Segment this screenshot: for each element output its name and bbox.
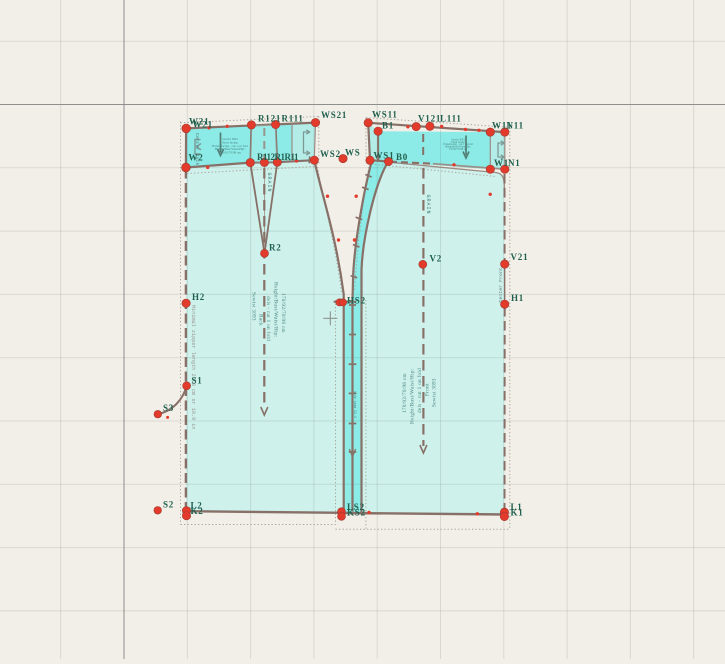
svg-text:GRAIN: GRAIN	[266, 173, 272, 193]
svg-text:WS: WS	[345, 148, 361, 158]
svg-text:Sewist 3093: Sewist 3093	[251, 292, 257, 321]
svg-text:W1: W1	[494, 158, 509, 168]
svg-text:WS21: WS21	[321, 110, 347, 120]
svg-text:W2: W2	[189, 153, 204, 163]
svg-text:dels - cut 1 on fold: dels - cut 1 on fold	[416, 368, 423, 413]
svg-text:dels - cut 1 on fold: dels - cut 1 on fold	[265, 296, 272, 341]
svg-text:Height/Bust/Waist/Hip:: Height/Bust/Waist/Hip:	[410, 368, 416, 424]
svg-text:K2: K2	[191, 506, 204, 516]
svg-text:R121: R121	[258, 114, 281, 124]
svg-text:170/92/70/98 cm: 170/92/70/98 cm	[402, 373, 408, 413]
svg-text:R111: R111	[282, 114, 304, 124]
svg-text:V21: V21	[511, 252, 529, 262]
svg-text:GRAIN: GRAIN	[425, 195, 431, 215]
svg-text:170/92/70/98 cm: 170/92/70/98 cm	[449, 148, 468, 151]
svg-text:V2: V2	[430, 254, 443, 264]
svg-text:K1: K1	[511, 508, 524, 518]
svg-text:side seam 52.3: side seam 52.3	[353, 391, 357, 418]
svg-text:H2: H2	[192, 292, 205, 302]
svg-text:HS2: HS2	[347, 296, 366, 306]
svg-text:B0: B0	[396, 152, 408, 162]
svg-text:WS1: WS1	[374, 151, 395, 161]
svg-text:WS11: WS11	[372, 110, 398, 120]
svg-text:S3: S3	[163, 403, 174, 413]
svg-text:170/92/70/98 cm: 170/92/70/98 cm	[280, 293, 286, 333]
svg-text:Sewist 3093: Sewist 3093	[432, 378, 438, 407]
svg-text:Back: Back	[258, 314, 264, 326]
svg-text:R112R1R11: R112R1R11	[257, 152, 299, 162]
svg-text:Minimal zipper length 27.8 cm: Minimal zipper length 27.8 cm or 10.9 in	[190, 305, 196, 430]
svg-text:H1: H1	[511, 293, 524, 303]
svg-text:KS2: KS2	[347, 508, 366, 518]
svg-text:Center Front: Center Front	[498, 267, 504, 302]
svg-text:L111: L111	[440, 114, 462, 124]
svg-text:WS2: WS2	[320, 149, 341, 159]
svg-text:170/92/70/98 cm: 170/92/70/98 cm	[219, 150, 241, 154]
svg-text:W21: W21	[193, 120, 213, 130]
svg-text:S2: S2	[163, 500, 174, 510]
svg-text:Front: Front	[425, 383, 431, 396]
svg-text:S1: S1	[192, 376, 203, 386]
svg-text:Height/Bust/Waist/Hip:: Height/Bust/Waist/Hip:	[273, 282, 279, 338]
svg-text:N1: N1	[508, 158, 521, 168]
svg-text:B1: B1	[382, 121, 394, 131]
svg-text:V121: V121	[418, 114, 441, 124]
svg-text:N11: N11	[507, 121, 524, 131]
svg-text:R2: R2	[269, 243, 282, 253]
